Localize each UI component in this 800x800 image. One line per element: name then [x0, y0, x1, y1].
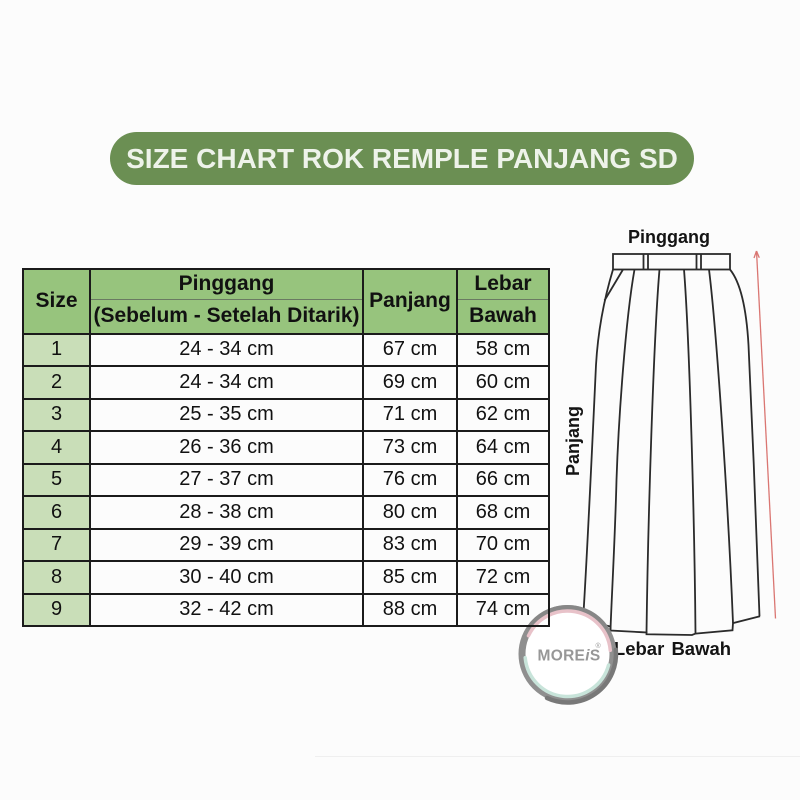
svg-text:MOREiS: MOREiS — [538, 648, 601, 665]
svg-text:®: ® — [596, 642, 602, 650]
